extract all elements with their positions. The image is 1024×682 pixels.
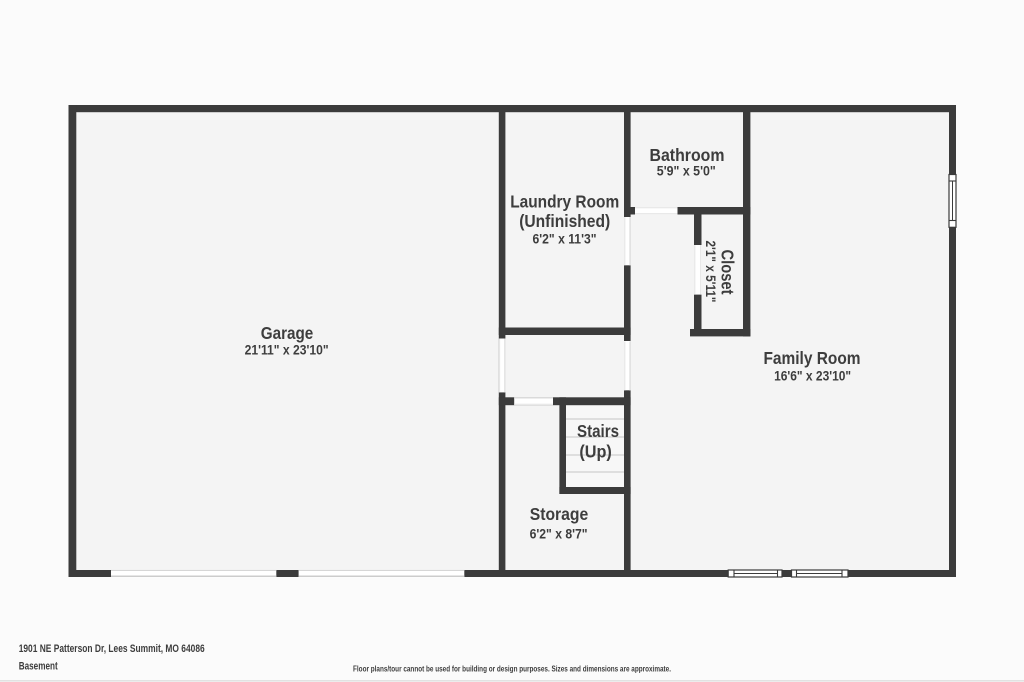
- svg-text:Stairs: Stairs: [577, 421, 619, 441]
- svg-text:Laundry Room: Laundry Room: [510, 192, 619, 212]
- svg-text:6'2" x 11'3": 6'2" x 11'3": [533, 232, 597, 247]
- svg-text:Storage: Storage: [530, 504, 589, 524]
- svg-text:2'1" x 5'11": 2'1" x 5'11": [703, 241, 718, 303]
- svg-text:Bathroom: Bathroom: [650, 145, 725, 165]
- svg-text:Closet: Closet: [718, 250, 738, 295]
- svg-text:21'11" x 23'10": 21'11" x 23'10": [245, 342, 329, 357]
- svg-text:(Unfinished): (Unfinished): [519, 211, 610, 231]
- svg-text:Basement: Basement: [19, 661, 58, 673]
- svg-text:(Up): (Up): [579, 441, 612, 461]
- svg-text:Floor plans/tour cannot be use: Floor plans/tour cannot be used for buil…: [353, 665, 671, 674]
- svg-text:16'6" x 23'10": 16'6" x 23'10": [774, 368, 851, 383]
- svg-text:1901 NE Patterson Dr, Lees Sum: 1901 NE Patterson Dr, Lees Summit, MO 64…: [19, 643, 205, 655]
- svg-text:6'2" x 8'7": 6'2" x 8'7": [530, 526, 588, 541]
- svg-text:Family Room: Family Room: [764, 348, 861, 368]
- svg-text:5'9" x 5'0": 5'9" x 5'0": [657, 164, 716, 179]
- svg-text:Garage: Garage: [261, 323, 314, 343]
